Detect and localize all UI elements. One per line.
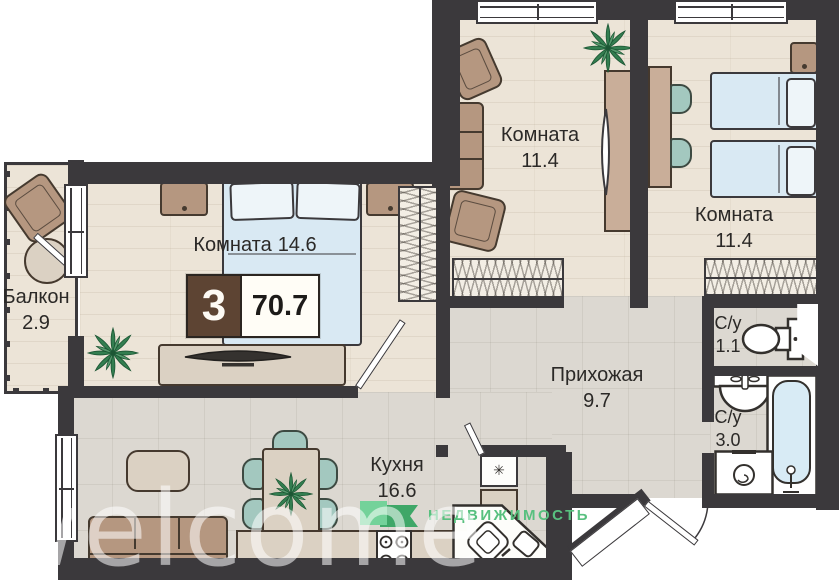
bed-pillow-right <box>295 181 360 221</box>
dining-chair-left2 <box>242 498 264 530</box>
washing-machine-icon <box>714 450 774 496</box>
room-name: Комната <box>695 202 773 228</box>
wall <box>58 386 74 436</box>
plant-icon <box>580 22 636 74</box>
room-label-bedroom: Комната 14.6 <box>170 232 340 258</box>
wall <box>68 386 358 398</box>
room-name: С/у <box>715 406 742 429</box>
room-label-right: Комната 11.4 <box>664 202 804 254</box>
nightstand-left <box>160 182 208 216</box>
middle-room-wardrobe <box>452 258 564 298</box>
brand-logo: НЕДВИЖИМОСТЬ <box>360 500 590 530</box>
wall <box>58 558 560 580</box>
right-room-wardrobe <box>704 258 820 296</box>
room-name: С/у <box>715 312 742 335</box>
room-name: Прихожая <box>551 362 644 388</box>
wall <box>702 366 820 376</box>
room-area: 2.9 <box>22 310 50 336</box>
window-right-room <box>674 0 788 24</box>
wall <box>436 184 450 398</box>
brand-flag-icon <box>360 500 418 530</box>
room-area: 9.7 <box>583 388 611 414</box>
fridge-snowflake-icon: ✳ <box>493 462 505 479</box>
fridge: ✳ <box>480 453 518 487</box>
bedroom-wardrobe <box>398 186 440 302</box>
wall <box>432 0 460 186</box>
right-room-nightstand <box>790 42 818 74</box>
room-area: 11.4 <box>715 228 752 254</box>
room-label-hallway: Прихожая 9.7 <box>532 362 662 414</box>
room-area: 14.6 <box>278 232 317 258</box>
room-name: Кухня <box>370 452 424 478</box>
apartment-badge: 3 70.7 <box>186 274 320 338</box>
total-area: 70.7 <box>240 276 318 336</box>
room-label-wc-big: С/у 3.0 <box>706 406 750 453</box>
desk-chair-bottom <box>670 138 692 168</box>
room-area: 11.4 <box>521 148 558 174</box>
wall <box>436 296 564 308</box>
wall <box>816 0 839 510</box>
plant-icon <box>84 326 142 380</box>
wall <box>702 453 714 496</box>
room-name: Комната <box>193 232 271 258</box>
room-label-wc-small: С/у 1.1 <box>706 312 750 359</box>
floor-plan: ✳ <box>0 0 839 586</box>
brand-logo-text: НЕДВИЖИМОСТЬ <box>428 507 590 524</box>
window-middle-room <box>476 0 598 24</box>
room-label-balcony: Балкон 2.9 <box>0 284 72 336</box>
desk-chair-top <box>670 84 692 114</box>
room-name: Балкон <box>2 284 69 310</box>
window-kitchen <box>55 434 78 542</box>
dining-chair-left1 <box>242 458 264 490</box>
wall <box>68 162 450 184</box>
bed2-pillow <box>786 146 816 196</box>
room-label-middle: Комната 11.4 <box>470 122 610 174</box>
window-bedroom-balcony <box>64 184 88 278</box>
plant-icon <box>268 466 314 522</box>
right-room-desk <box>648 66 672 188</box>
bed-pillow-left <box>229 181 294 221</box>
rooms-count: 3 <box>188 276 240 336</box>
bed1-pillow <box>786 78 816 128</box>
room-label-kitchen: Кухня 16.6 <box>338 452 456 504</box>
wall <box>702 494 818 508</box>
room-name: Комната <box>501 122 579 148</box>
tv-icon <box>182 348 294 370</box>
room-area: 1.1 <box>715 335 740 358</box>
room-area: 3.0 <box>715 429 740 452</box>
wall <box>630 16 648 308</box>
coffee-table <box>126 450 190 492</box>
